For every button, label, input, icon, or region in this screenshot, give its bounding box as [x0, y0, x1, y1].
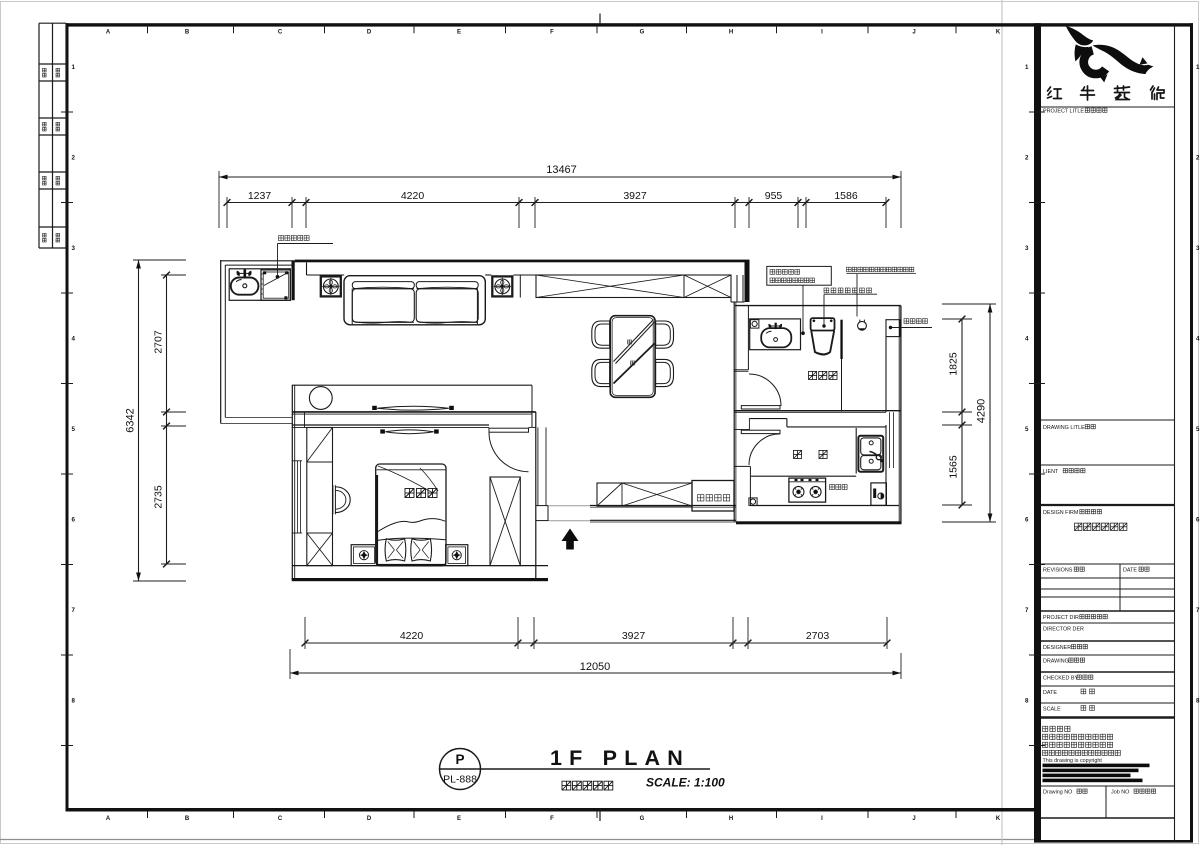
- svg-text:4220: 4220: [401, 190, 425, 202]
- svg-text:5: 5: [1196, 426, 1200, 433]
- svg-text:DESIGNER: DESIGNER: [1043, 645, 1071, 651]
- svg-text:7: 7: [1025, 607, 1029, 614]
- svg-text:7: 7: [1196, 607, 1200, 614]
- svg-text:2: 2: [1025, 155, 1029, 162]
- svg-text:3: 3: [1196, 245, 1200, 252]
- svg-text:DATE: DATE: [1043, 690, 1057, 696]
- svg-text:E: E: [457, 30, 461, 36]
- svg-text:SCALE: 1:100: SCALE: 1:100: [646, 776, 725, 790]
- svg-text:5: 5: [72, 426, 76, 433]
- svg-text:H: H: [729, 816, 733, 822]
- svg-text:DATE: DATE: [1123, 567, 1137, 573]
- svg-text:4290: 4290: [976, 399, 988, 423]
- svg-text:6: 6: [1025, 517, 1029, 524]
- svg-text:6: 6: [72, 517, 76, 524]
- svg-text:DRAWING LITLE: DRAWING LITLE: [1043, 425, 1085, 431]
- svg-text:K: K: [996, 30, 1001, 36]
- svg-text:J: J: [912, 816, 915, 822]
- svg-text:4: 4: [1196, 336, 1200, 343]
- svg-text:3927: 3927: [623, 190, 647, 202]
- svg-text:A: A: [106, 30, 111, 36]
- svg-text:1: 1: [72, 64, 76, 71]
- svg-text:1237: 1237: [248, 190, 272, 202]
- svg-text:G: G: [640, 30, 645, 36]
- svg-text:DRAWING: DRAWING: [1043, 658, 1069, 664]
- svg-text:DIRECTOR DER: DIRECTOR DER: [1043, 626, 1084, 632]
- svg-text:2703: 2703: [806, 630, 830, 642]
- svg-text:3: 3: [1025, 245, 1029, 252]
- svg-text:C: C: [278, 30, 283, 36]
- svg-text:B: B: [185, 816, 190, 822]
- svg-text:6342: 6342: [125, 408, 137, 432]
- svg-text:G: G: [640, 816, 645, 822]
- svg-text:REVISIONS: REVISIONS: [1043, 567, 1073, 573]
- svg-text:CHECKED BY: CHECKED BY: [1043, 675, 1078, 681]
- svg-text:E: E: [457, 816, 461, 822]
- svg-text:PL-888: PL-888: [443, 774, 477, 786]
- svg-text:F: F: [550, 816, 554, 822]
- svg-text:5: 5: [1025, 426, 1029, 433]
- svg-text:Drawing NO: Drawing NO: [1043, 789, 1072, 795]
- svg-text:J: J: [912, 30, 915, 36]
- svg-text:P: P: [455, 752, 464, 767]
- svg-text:D: D: [367, 30, 372, 36]
- svg-text:F: F: [550, 30, 554, 36]
- svg-text:8: 8: [1196, 698, 1200, 705]
- svg-text:LIENT: LIENT: [1043, 469, 1059, 475]
- svg-text:6: 6: [1196, 517, 1200, 524]
- svg-text:1565: 1565: [948, 455, 960, 479]
- svg-text:8: 8: [72, 698, 76, 705]
- svg-text:3: 3: [72, 245, 76, 252]
- svg-text:955: 955: [765, 190, 783, 202]
- svg-text:8: 8: [1025, 698, 1029, 705]
- svg-text:4: 4: [1025, 336, 1029, 343]
- svg-text:4: 4: [72, 336, 76, 343]
- svg-text:2735: 2735: [153, 485, 165, 509]
- svg-text:PROJECT LITLE: PROJECT LITLE: [1043, 108, 1084, 114]
- svg-text:1825: 1825: [948, 352, 960, 376]
- svg-text:This drawing is copyright: This drawing is copyright: [1043, 758, 1103, 764]
- svg-text:C: C: [278, 816, 283, 822]
- svg-text:1586: 1586: [834, 190, 858, 202]
- svg-text:D: D: [367, 816, 372, 822]
- svg-text:2707: 2707: [153, 330, 165, 354]
- svg-text:1F PLAN: 1F PLAN: [550, 746, 690, 770]
- svg-text:DESIGN FIRM: DESIGN FIRM: [1043, 510, 1079, 516]
- svg-text:3927: 3927: [622, 630, 646, 642]
- svg-text:7: 7: [72, 607, 76, 614]
- svg-text:2: 2: [1196, 155, 1200, 162]
- svg-text:1: 1: [1196, 64, 1200, 71]
- svg-text:A: A: [106, 816, 111, 822]
- svg-text:2: 2: [72, 155, 76, 162]
- svg-text:13467: 13467: [546, 164, 577, 176]
- svg-text:Job NO: Job NO: [1111, 789, 1129, 795]
- svg-text:K: K: [996, 816, 1001, 822]
- svg-text:4220: 4220: [400, 630, 424, 642]
- svg-text:1: 1: [1025, 64, 1029, 71]
- svg-text:SCALE: SCALE: [1043, 706, 1061, 712]
- svg-text:PROJECT DIR: PROJECT DIR: [1043, 615, 1079, 621]
- svg-text:12050: 12050: [580, 661, 611, 673]
- svg-text:H: H: [729, 30, 733, 36]
- svg-text:B: B: [185, 30, 190, 36]
